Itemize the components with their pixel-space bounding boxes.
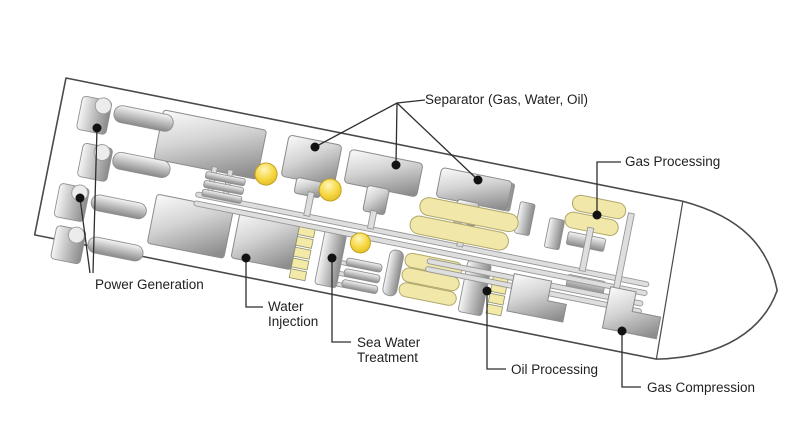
sea-water-treatment-label-line2: Treatment [357, 350, 418, 365]
sea-water-treatment-label: Sea Water [357, 335, 421, 350]
fpso-diagram-svg: Separator (Gas, Water, Oil) Gas Processi… [0, 0, 794, 437]
separator-label: Separator (Gas, Water, Oil) [425, 92, 588, 107]
gas-compression-label: Gas Compression [647, 380, 755, 395]
gas-processing-label: Gas Processing [625, 154, 720, 169]
power-generation-label: Power Generation [95, 277, 204, 292]
leader-dot [311, 143, 320, 152]
water-injection-label: Water [268, 299, 304, 314]
leader-dot [242, 254, 251, 263]
leader-dot [392, 161, 401, 170]
leader-dot [328, 254, 337, 263]
water-injection-label-line2: Injection [268, 314, 318, 329]
leader-dot [618, 327, 627, 336]
leader-dot [593, 211, 602, 220]
fpso-layout-diagram: Separator (Gas, Water, Oil) Gas Processi… [0, 0, 794, 437]
leader-dot [474, 176, 483, 185]
oil-processing-label: Oil Processing [511, 362, 598, 377]
leader-dot [93, 124, 102, 133]
leader-dot [483, 287, 492, 296]
leader-dot [76, 194, 85, 203]
